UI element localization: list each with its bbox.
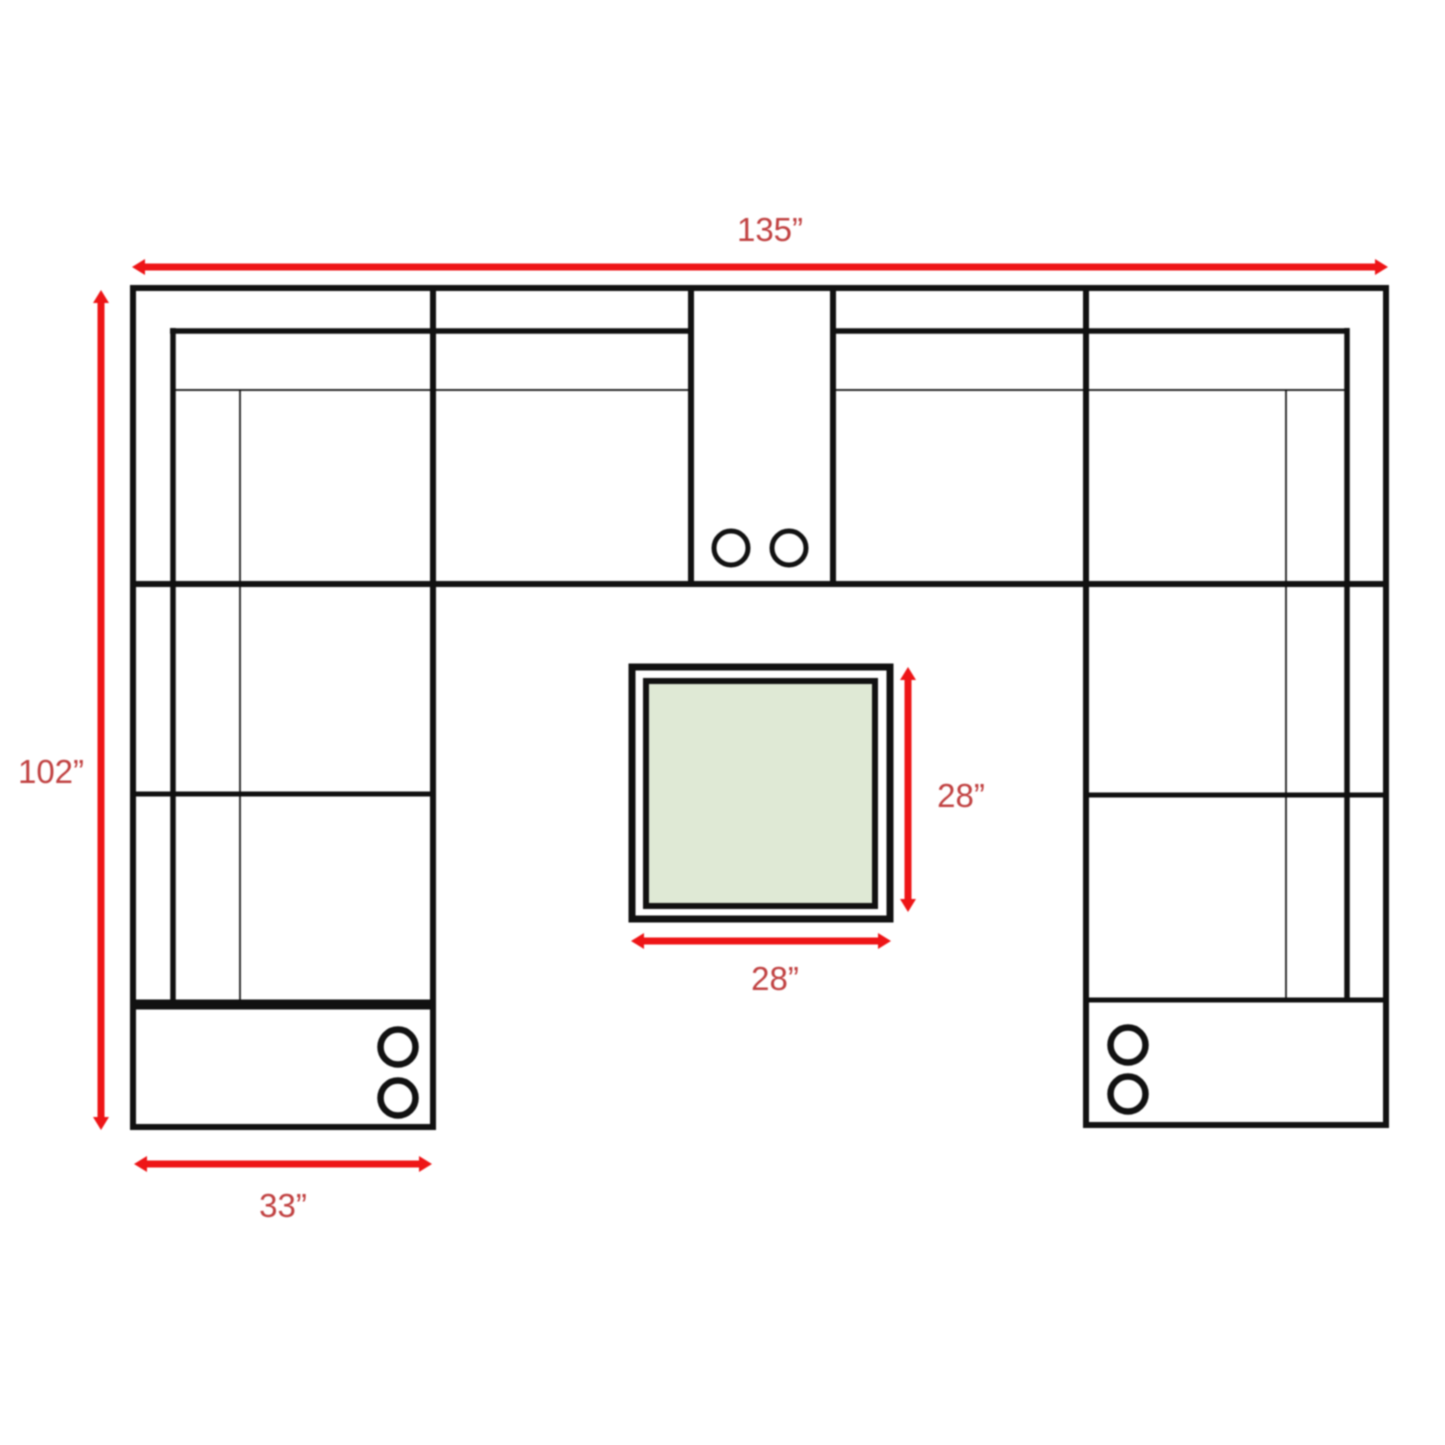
svg-text:135”: 135” xyxy=(737,211,803,248)
svg-text:28”: 28” xyxy=(937,777,985,814)
svg-text:33”: 33” xyxy=(259,1187,307,1224)
svg-text:102”: 102” xyxy=(18,753,84,790)
svg-text:28”: 28” xyxy=(751,960,799,997)
